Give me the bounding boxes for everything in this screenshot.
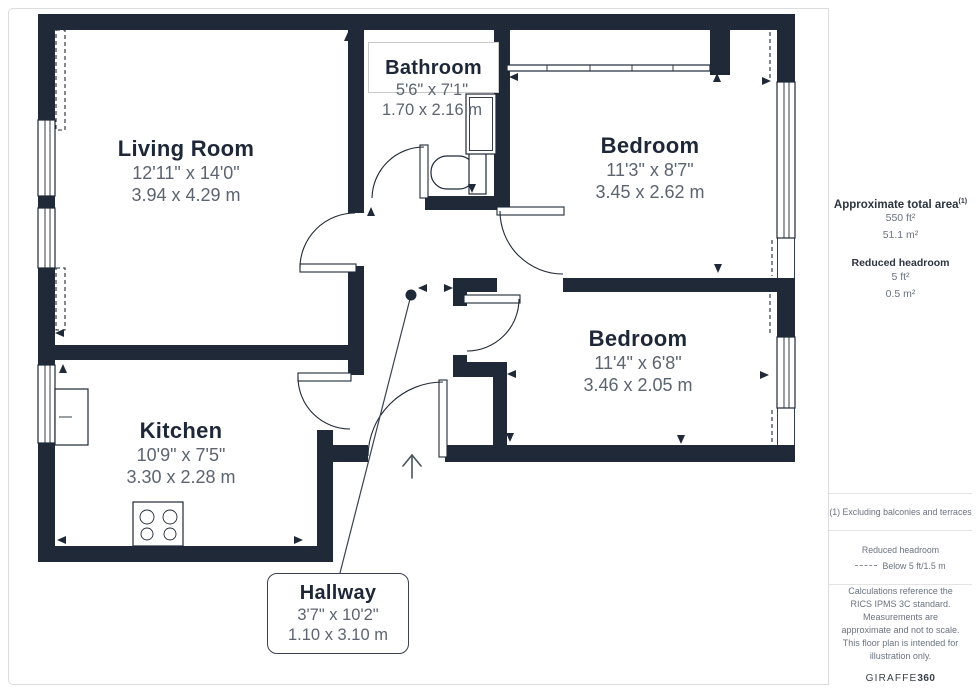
room-dim-imperial: 10'9" x 7'5" xyxy=(126,444,235,466)
kitchen-door xyxy=(298,373,351,429)
window xyxy=(38,120,55,196)
room-dim-imperial: 11'3" x 8'7" xyxy=(595,159,704,181)
room-title: Living Room xyxy=(118,136,255,162)
legend-value: Below 5 ft/1.5 m xyxy=(882,561,945,571)
total-area-label: Approximate total area(1) xyxy=(834,198,967,211)
room-dim-metric: 3.94 x 4.29 m xyxy=(118,184,255,206)
floorplan-canvas: Living Room 12'11" x 14'0" 3.94 x 4.29 m… xyxy=(0,0,980,693)
window xyxy=(38,365,55,443)
room-label-living-room: Living Room 12'11" x 14'0" 3.94 x 4.29 m xyxy=(118,136,255,206)
hallway-marker-dot xyxy=(406,290,417,301)
room-dim-imperial: 11'4" x 6'8" xyxy=(583,352,692,374)
total-area-m: 51.1 m² xyxy=(883,227,919,244)
footnote-marker: (1) xyxy=(959,198,968,205)
room-dim-metric: 3.45 x 2.62 m xyxy=(595,181,704,203)
room-dim-metric: 3.46 x 2.05 m xyxy=(583,374,692,396)
bedroom2-door xyxy=(464,295,520,351)
footnote-section: (1) Excluding balconies and terraces xyxy=(829,493,972,530)
room-title: Bathroom xyxy=(385,55,482,81)
reduced-headroom-label: Reduced headroom xyxy=(851,257,949,269)
stove-icon xyxy=(133,502,183,546)
room-title: Kitchen xyxy=(126,418,235,444)
room-title: Bedroom xyxy=(583,326,692,352)
room-label-kitchen: Kitchen 10'9" x 7'5" 3.30 x 2.28 m xyxy=(126,418,235,488)
room-label-bedroom-2: Bedroom 11'4" x 6'8" 3.46 x 2.05 m xyxy=(583,326,692,396)
footnote-text: (1) Excluding balconies and terraces xyxy=(829,507,971,517)
room-dim-imperial: 3'7" x 10'2" xyxy=(297,605,378,625)
room-dim-metric: 1.10 x 3.10 m xyxy=(288,625,388,645)
kitchen-sink-icon xyxy=(55,389,88,445)
dashed-line-icon xyxy=(855,565,877,566)
brand-logo: GIRAFFE360 xyxy=(866,672,936,685)
legend-label: Reduced headroom xyxy=(862,545,939,555)
room-label-bathroom-dims: 5'6" x 7'1" 1.70 x 2.16 m xyxy=(382,80,482,120)
total-area-section: Approximate total area(1) 550 ft² 51.1 m… xyxy=(829,8,972,493)
window xyxy=(777,82,795,238)
toilet-icon xyxy=(431,151,486,194)
disclaimer-section: Calculations reference the RICS IPMS 3C … xyxy=(829,584,972,685)
room-dim-imperial: 5'6" x 7'1" xyxy=(382,80,482,100)
window xyxy=(38,208,55,268)
room-dim-metric: 3.30 x 2.28 m xyxy=(126,466,235,488)
disclaimer-text: Calculations reference the RICS IPMS 3C … xyxy=(838,585,964,663)
room-dim-metric: 1.70 x 2.16 m xyxy=(382,100,482,120)
room-label-bedroom-1: Bedroom 11'3" x 8'7" 3.45 x 2.62 m xyxy=(595,133,704,203)
doors-group xyxy=(298,145,564,457)
legend-section: Reduced headroom Below 5 ft/1.5 m xyxy=(829,530,972,584)
window xyxy=(777,337,795,408)
north-arrow-icon xyxy=(403,455,421,478)
reduced-headroom-ft: 5 ft² xyxy=(891,269,909,286)
info-sidebar: Approximate total area(1) 550 ft² 51.1 m… xyxy=(828,8,972,685)
wardrobe-icon xyxy=(507,65,710,71)
room-title: Hallway xyxy=(300,582,377,605)
room-title: Bedroom xyxy=(595,133,704,159)
reduced-headroom-m: 0.5 m² xyxy=(886,286,916,303)
living-room-door xyxy=(300,213,356,272)
room-label-callout-hallway: Hallway 3'7" x 10'2" 1.10 x 3.10 m xyxy=(267,573,409,654)
bedroom1-door xyxy=(497,207,564,274)
bathroom-door xyxy=(372,145,428,198)
room-dim-imperial: 12'11" x 14'0" xyxy=(118,162,255,184)
total-area-ft: 550 ft² xyxy=(886,210,916,227)
